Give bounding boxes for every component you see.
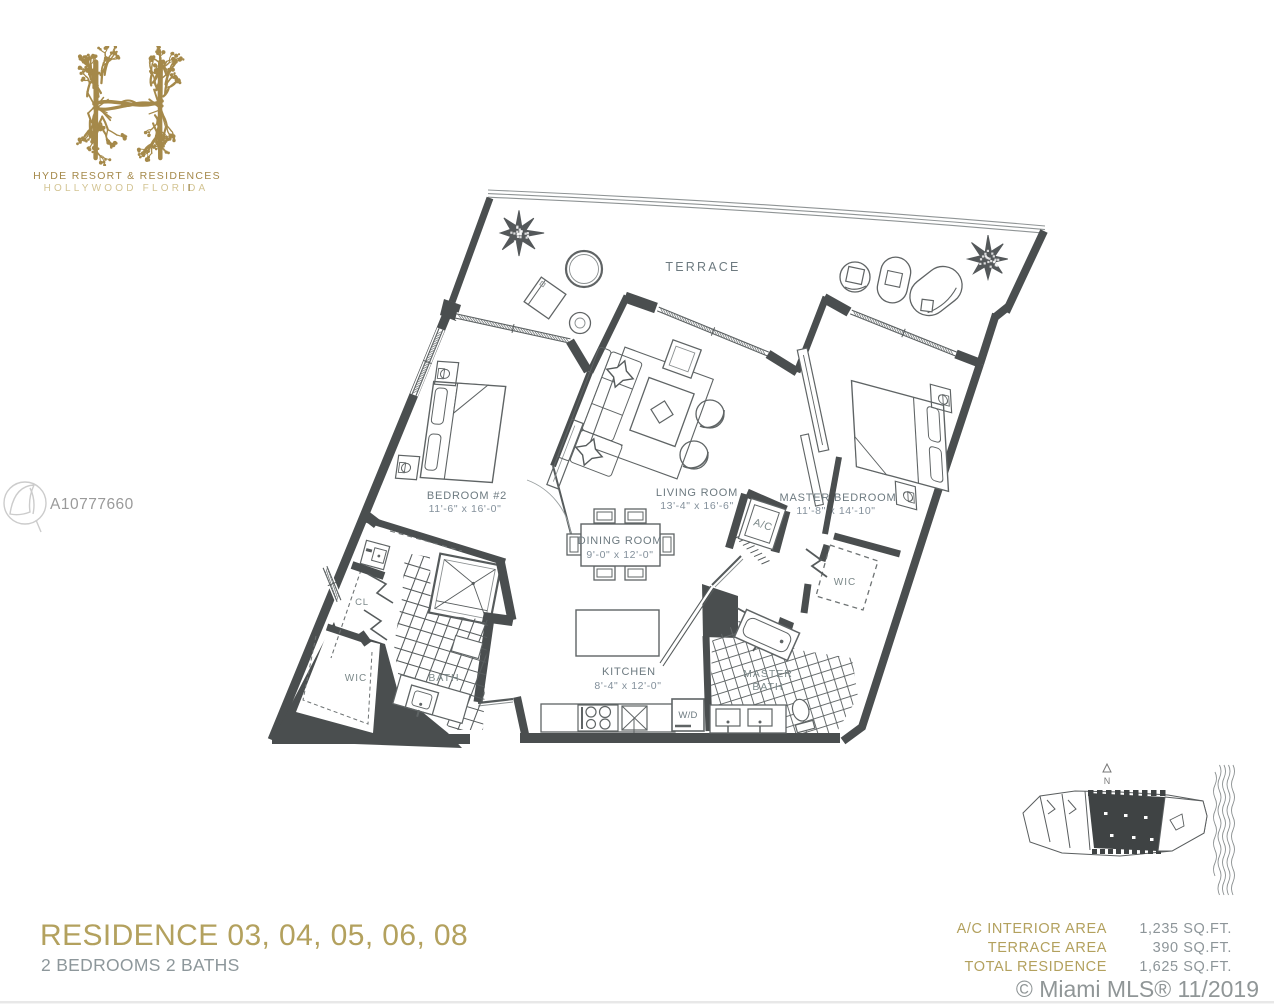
svg-text:BATH: BATH [752, 681, 783, 693]
svg-text:HYDE RESORT & RESIDENCES: HYDE RESORT & RESIDENCES [33, 170, 221, 182]
svg-text:W/D: W/D [678, 710, 697, 721]
svg-text:CL: CL [355, 597, 369, 608]
svg-text:390 SQ.FT.: 390 SQ.FT. [1153, 940, 1232, 956]
svg-text:1,235 SQ.FT.: 1,235 SQ.FT. [1139, 921, 1232, 937]
svg-text:RESIDENCE 03, 04, 05, 06, 08: RESIDENCE 03, 04, 05, 06, 08 [40, 919, 468, 952]
svg-text:13'-4" x 16'-6": 13'-4" x 16'-6" [660, 500, 734, 512]
svg-text:MASTER: MASTER [743, 668, 793, 680]
svg-text:8'-4" x 12'-0": 8'-4" x 12'-0" [594, 680, 661, 692]
svg-text:TOTAL RESIDENCE: TOTAL RESIDENCE [965, 959, 1107, 975]
svg-text:LIVING ROOM: LIVING ROOM [656, 487, 738, 499]
svg-text:I: I [188, 183, 191, 194]
svg-text:KITCHEN: KITCHEN [602, 666, 656, 678]
svg-text:A/C INTERIOR AREA: A/C INTERIOR AREA [957, 921, 1107, 937]
svg-text:11'-8" x 14'-10": 11'-8" x 14'-10" [796, 505, 875, 517]
svg-text:WIC: WIC [834, 577, 856, 588]
svg-text:1,625 SQ.FT.: 1,625 SQ.FT. [1139, 959, 1232, 975]
svg-text:11'-6" x 16'-0": 11'-6" x 16'-0" [429, 503, 502, 515]
svg-text:© Miami MLS® 11/2019: © Miami MLS® 11/2019 [1016, 976, 1259, 1002]
svg-text:DINING ROOM: DINING ROOM [578, 535, 663, 547]
svg-text:N: N [1104, 776, 1111, 786]
svg-text:HOLLYWOOD FLORIDA: HOLLYWOOD FLORIDA [44, 183, 209, 194]
svg-text:TERRACE: TERRACE [665, 260, 740, 274]
svg-text:MASTER BEDROOM: MASTER BEDROOM [780, 492, 897, 504]
svg-text:BEDROOM #2: BEDROOM #2 [427, 490, 507, 502]
svg-text:2 BEDROOMS 2 BATHS: 2 BEDROOMS 2 BATHS [41, 955, 240, 975]
svg-text:A10777660: A10777660 [50, 496, 134, 513]
svg-text:9'-0" x 12'-0": 9'-0" x 12'-0" [586, 549, 653, 561]
svg-text:TERRACE AREA: TERRACE AREA [988, 940, 1107, 956]
svg-text:WIC: WIC [345, 673, 367, 684]
svg-text:BATH: BATH [428, 672, 459, 684]
